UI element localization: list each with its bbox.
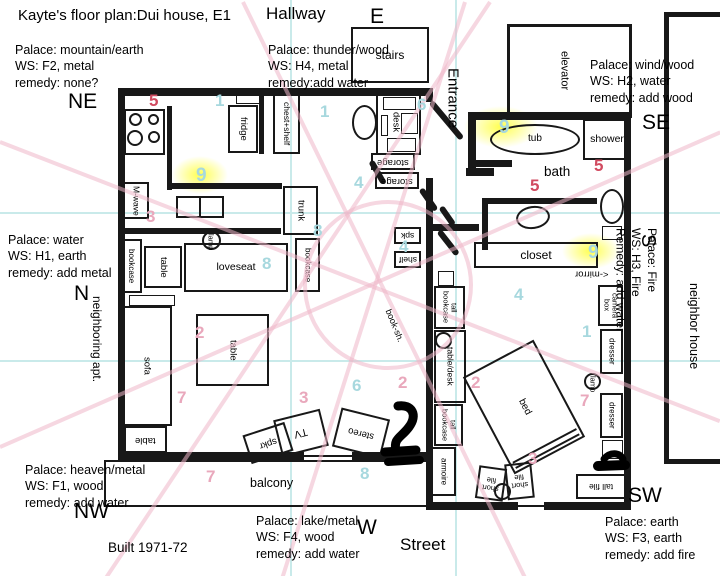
bath-stub-wall xyxy=(476,160,512,167)
palace-mountain: Palace: mountain/earth WS: F2, metal rem… xyxy=(15,42,144,91)
street-label: Street xyxy=(400,536,445,555)
bedroom-bottom-wall-left xyxy=(426,502,518,510)
small-table-label: table xyxy=(135,435,156,445)
palace-wind: Palace: wind/wood WS: H2, water remedy: … xyxy=(590,57,694,106)
fridge-top-cabinet xyxy=(236,90,264,104)
palace-water: Palace: water WS: H1, earth remedy: add … xyxy=(8,232,112,281)
sector-number: 1 xyxy=(320,103,329,120)
compass-circle xyxy=(303,200,473,370)
floor-plan-canvas: balcony stairs elevator neighbor house t… xyxy=(0,0,720,576)
stereo-label: stereo xyxy=(347,425,375,441)
direction-se: SE xyxy=(642,112,670,133)
built-label: Built 1971-72 xyxy=(108,541,188,556)
armoire: armoire xyxy=(431,447,456,496)
lamp-bedroom-label: lamp xyxy=(588,376,596,392)
neighboring-apt-label: neighboring apt. xyxy=(90,296,103,382)
fridge: fridge xyxy=(228,105,258,153)
bedroom-door-opening xyxy=(518,505,544,507)
chest-shelf: chest+shelf xyxy=(273,93,300,154)
sector-number: 8 xyxy=(262,255,271,272)
living-divider-wall xyxy=(118,228,281,234)
stereo: stereo xyxy=(332,408,390,459)
sector-number: 9 xyxy=(499,118,510,137)
elevator-label: elevator xyxy=(558,51,570,90)
sector-number: 8 xyxy=(313,222,322,239)
sector-number: 6 xyxy=(352,377,361,394)
tall-file: tall file xyxy=(576,474,626,499)
bed-label: bed xyxy=(515,397,532,417)
hallway-label: Hallway xyxy=(266,5,326,24)
speaker-floor-label: spkr xyxy=(258,435,278,450)
sector-number: 1 xyxy=(215,92,224,109)
bed-foot-line-1 xyxy=(512,428,577,464)
sector-number: 1 xyxy=(582,323,591,340)
chest-shelf-label: chest+shelf xyxy=(282,102,291,145)
scribble-living xyxy=(395,406,413,451)
scribble-bedroom-bar xyxy=(598,465,625,466)
side-table-label: table xyxy=(158,257,168,278)
direction-ne: NE xyxy=(68,91,97,112)
neighbor-house-bottom-wall xyxy=(664,459,720,464)
sector-number: 7 xyxy=(206,468,215,485)
sink xyxy=(600,189,624,224)
neighbor-house-label: neighbor house xyxy=(686,283,700,369)
sector-number: 3 xyxy=(528,450,537,467)
balcony-door-opening xyxy=(304,455,352,457)
dresser-2-label: dresser xyxy=(607,402,615,429)
direction-w: W xyxy=(357,517,377,538)
short-file-2-label: short file xyxy=(507,472,532,490)
sector-number: 7 xyxy=(177,389,186,406)
tv-label: TV xyxy=(293,426,309,440)
sofa: sofa xyxy=(121,306,172,426)
small-table: table xyxy=(124,426,167,453)
entrance-label: Entrance xyxy=(444,68,461,128)
bath-left-wall xyxy=(468,112,476,170)
fridge-label: fridge xyxy=(238,117,248,141)
mirror-note: <-mirror xyxy=(575,268,609,278)
sofa-label: sofa xyxy=(142,357,152,375)
office-chair xyxy=(352,105,377,140)
sector-number: 6 xyxy=(417,96,426,113)
sofa-shelf xyxy=(129,295,175,306)
storage-box-2: storage xyxy=(375,172,419,189)
bedroom-bottom-wall-right xyxy=(544,502,631,510)
bookcase-left: bookcase xyxy=(120,239,142,293)
sector-number: 5 xyxy=(149,92,158,109)
balcony-label: balcony xyxy=(250,477,293,491)
tall-file-label: tall file xyxy=(589,482,613,491)
dresser-1-label: dresser xyxy=(607,338,615,365)
microwave-label: M-wave xyxy=(132,186,141,216)
sector-number: 2 xyxy=(195,324,204,341)
shower-stall: shower xyxy=(583,119,631,160)
direction-n: N xyxy=(74,283,89,304)
sector-number: 4 xyxy=(354,174,363,191)
toilet-room-top-wall xyxy=(482,198,597,204)
palace-earth: Palace: earth WS: F3, earth remedy: add … xyxy=(605,514,695,563)
side-table: table xyxy=(144,246,182,288)
counter-divider xyxy=(199,198,201,216)
sector-number: 4 xyxy=(399,238,408,255)
sector-number: 8 xyxy=(360,465,369,482)
desk-part-top xyxy=(383,97,416,110)
sector-number: 5 xyxy=(530,177,539,194)
stove-burner-1 xyxy=(129,113,142,126)
neighbor-house-top-wall xyxy=(664,12,720,17)
stove-burner-3 xyxy=(127,130,143,146)
page-title: Kayte's floor plan:Dui house, E1 xyxy=(18,8,231,25)
sector-number: 4 xyxy=(514,286,523,303)
kitchen-partition-h xyxy=(167,183,282,189)
sector-number: 9 xyxy=(196,166,207,185)
direction-sw: SW xyxy=(628,485,662,506)
desk-part-left xyxy=(381,115,388,136)
palace-heaven: Palace: heaven/metal WS: F1, wood remedy… xyxy=(25,462,145,511)
sector-number: 9 xyxy=(588,243,599,262)
sector-number: 5 xyxy=(594,157,603,174)
kitchen-partition-v xyxy=(167,106,172,190)
entry-stub-wall xyxy=(466,168,494,176)
shower-label: shower xyxy=(590,134,624,145)
bookcase-left-label: bookcase xyxy=(127,249,135,283)
dresser-1: dresser xyxy=(600,329,623,374)
stove-burner-4 xyxy=(148,131,160,143)
stove-burner-2 xyxy=(148,114,159,125)
sector-number: 3 xyxy=(299,389,308,406)
closet-label: closet xyxy=(520,249,551,262)
sector-number: 2 xyxy=(398,374,407,391)
direction-e: E xyxy=(370,6,384,27)
loveseat-label: loveseat xyxy=(216,262,255,273)
table-desk-label: table/desk xyxy=(446,347,455,386)
sector-number: 3 xyxy=(146,208,155,225)
palace-lake: Palace: lake/metal WS: F4, wood remedy: … xyxy=(256,513,360,562)
armoire-label: armoire xyxy=(439,458,447,485)
closet: closet xyxy=(474,242,598,268)
palace-thunder: Palace: thunder/wood WS: H4, metal remed… xyxy=(268,42,389,91)
tub-label: tub xyxy=(528,133,542,144)
loveseat: loveseat xyxy=(184,243,288,292)
bath-label: bath xyxy=(544,165,570,180)
trunk-label: trunk xyxy=(296,200,306,221)
palace-fire: Palace: Fire WS: H3, Fire Remedy: add wa… xyxy=(612,228,659,332)
bedside-box xyxy=(602,440,623,459)
sector-number: 7 xyxy=(580,392,589,409)
desk-label: desk xyxy=(390,112,400,132)
dresser-2: dresser xyxy=(600,393,623,438)
sector-number: 2 xyxy=(471,374,480,391)
lamp-floor-bedroom xyxy=(494,483,511,500)
